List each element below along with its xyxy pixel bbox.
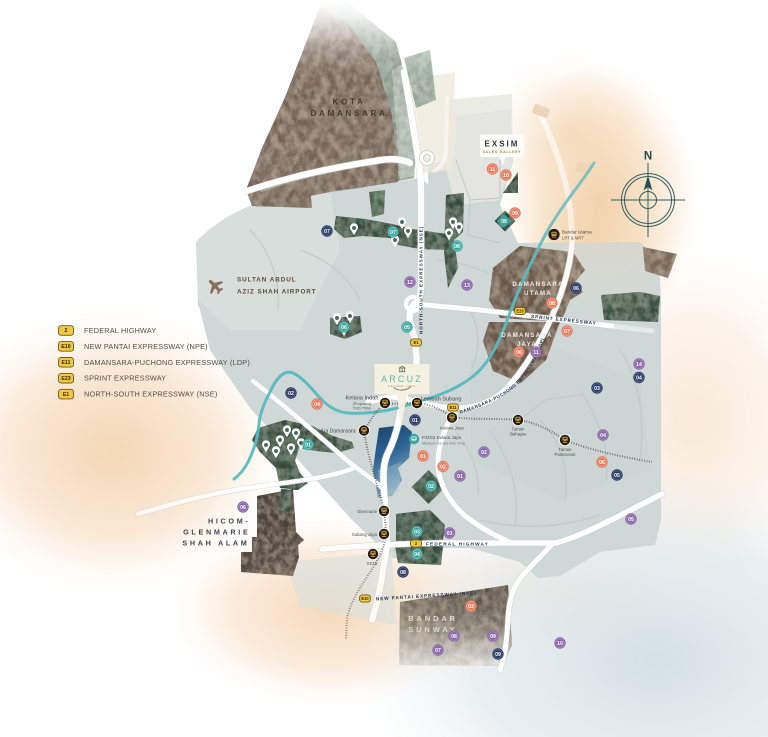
- svg-text:04: 04: [600, 433, 606, 439]
- svg-text:E1: E1: [63, 392, 69, 398]
- svg-text:Bandar Utama: Bandar Utama: [562, 230, 592, 235]
- svg-text:N: N: [644, 151, 652, 163]
- svg-text:KOTA: KOTA: [333, 98, 366, 107]
- svg-text:05: 05: [628, 517, 634, 523]
- svg-text:10: 10: [557, 641, 563, 647]
- svg-text:Bahagia: Bahagia: [510, 432, 526, 437]
- svg-text:09: 09: [501, 219, 507, 225]
- svg-text:BANDAR: BANDAR: [408, 614, 458, 623]
- svg-text:06: 06: [516, 350, 522, 356]
- svg-text:08: 08: [451, 634, 457, 640]
- svg-text:SULTAN ABDUL: SULTAN ABDUL: [237, 277, 297, 284]
- svg-text:Medical Centre Bus Stop: Medical Centre Bus Stop: [422, 441, 465, 446]
- svg-text:LRT & MRT: LRT & MRT: [562, 236, 584, 241]
- svg-text:05: 05: [614, 473, 620, 479]
- svg-text:NEW PANTAI EXPRESSWAY (NPE): NEW PANTAI EXPRESSWAY (NPE): [84, 342, 208, 351]
- svg-text:01: 01: [420, 454, 426, 460]
- svg-text:03: 03: [594, 386, 600, 392]
- svg-text:Kelana Jaya: Kelana Jaya: [440, 426, 464, 431]
- svg-text:06: 06: [573, 286, 579, 292]
- svg-text:DAMANSARA: DAMANSARA: [501, 332, 552, 339]
- svg-text:11: 11: [533, 350, 539, 356]
- svg-text:07: 07: [564, 329, 570, 335]
- svg-text:PJ2G2 Kelana Jaya: PJ2G2 Kelana Jaya: [422, 435, 461, 440]
- svg-text:06: 06: [341, 325, 347, 331]
- svg-text:Kelana Indah: Kelana Indah: [346, 396, 379, 402]
- svg-text:12: 12: [407, 280, 413, 286]
- svg-text:DAMANSARA: DAMANSARA: [512, 281, 563, 288]
- svg-text:AZIZ SHAH AIRPORT: AZIZ SHAH AIRPORT: [237, 289, 317, 296]
- svg-text:FEDERAL HIGHWAY: FEDERAL HIGHWAY: [426, 542, 489, 548]
- svg-text:FEDERAL HIGHWAY: FEDERAL HIGHWAY: [84, 326, 156, 335]
- svg-text:06: 06: [599, 460, 605, 466]
- svg-text:Subang Jaya: Subang Jaya: [352, 532, 378, 537]
- svg-text:(Proposed): (Proposed): [353, 402, 373, 406]
- svg-text:08: 08: [454, 244, 460, 250]
- svg-text:SALES GALLERY: SALES GALLERY: [483, 150, 522, 154]
- svg-text:E10: E10: [361, 596, 369, 601]
- svg-text:KELANA JAYA: KELANA JAYA: [388, 384, 416, 388]
- svg-text:SPRINT EXPRESSWAY: SPRINT EXPRESSWAY: [84, 374, 166, 383]
- svg-text:07: 07: [390, 230, 396, 236]
- svg-text:E10: E10: [61, 344, 70, 350]
- svg-text:2: 2: [65, 328, 68, 334]
- svg-text:03: 03: [414, 529, 420, 535]
- svg-text:13: 13: [464, 283, 470, 289]
- svg-text:DAMANSARA: DAMANSARA: [310, 109, 387, 118]
- svg-text:EXSIM: EXSIM: [485, 140, 520, 149]
- svg-text:03: 03: [468, 604, 474, 610]
- svg-text:04: 04: [314, 402, 320, 408]
- svg-text:HICOM-: HICOM-: [208, 517, 251, 526]
- svg-text:09: 09: [495, 652, 501, 658]
- svg-text:Lembah Subang: Lembah Subang: [420, 397, 461, 403]
- svg-text:DAMANSARA-PUCHONG EXPRESSWAY (: DAMANSARA-PUCHONG EXPRESSWAY (LDP): [84, 358, 250, 367]
- svg-text:04: 04: [414, 552, 420, 558]
- svg-text:02: 02: [428, 484, 434, 490]
- svg-text:09: 09: [512, 211, 518, 217]
- svg-text:UTAMA: UTAMA: [524, 290, 552, 297]
- svg-text:SS15: SS15: [367, 561, 378, 566]
- svg-text:E11: E11: [62, 360, 71, 366]
- svg-text:02: 02: [288, 391, 294, 397]
- svg-text:11: 11: [490, 167, 496, 173]
- svg-text:08: 08: [549, 301, 555, 307]
- svg-text:09: 09: [490, 634, 496, 640]
- svg-text:10: 10: [503, 173, 509, 179]
- svg-text:NORTH-SOUTH EXPRESSWAY (NSE): NORTH-SOUTH EXPRESSWAY (NSE): [418, 226, 423, 334]
- svg-text:Glenmarie: Glenmarie: [357, 509, 377, 514]
- svg-text:ARCUZ: ARCUZ: [381, 374, 423, 384]
- svg-text:07: 07: [435, 648, 441, 654]
- svg-text:01: 01: [412, 418, 418, 424]
- svg-text:04: 04: [636, 375, 642, 381]
- svg-text:06: 06: [240, 505, 246, 511]
- svg-text:GLENMARIE: GLENMARIE: [183, 528, 250, 537]
- svg-text:05: 05: [404, 325, 410, 331]
- svg-text:02: 02: [440, 464, 446, 470]
- svg-text:E11: E11: [449, 405, 457, 410]
- svg-text:01: 01: [457, 474, 463, 480]
- svg-text:E23: E23: [61, 376, 70, 382]
- svg-text:TOD 750m: TOD 750m: [353, 406, 372, 410]
- svg-text:08: 08: [400, 570, 406, 576]
- svg-text:Ara Damansara: Ara Damansara: [320, 429, 355, 435]
- svg-text:02: 02: [481, 450, 487, 456]
- svg-text:01: 01: [305, 442, 311, 448]
- svg-text:03: 03: [447, 531, 453, 537]
- svg-text:07: 07: [324, 229, 330, 235]
- svg-text:14: 14: [636, 362, 642, 368]
- svg-text:SHAH ALAM: SHAH ALAM: [182, 539, 249, 548]
- svg-text:NORTH-SOUTH EXPRESSWAY (NSE): NORTH-SOUTH EXPRESSWAY (NSE): [84, 390, 217, 399]
- svg-text:E23: E23: [516, 309, 524, 314]
- svg-text:E1: E1: [413, 340, 419, 345]
- svg-text:Paramount: Paramount: [554, 452, 576, 457]
